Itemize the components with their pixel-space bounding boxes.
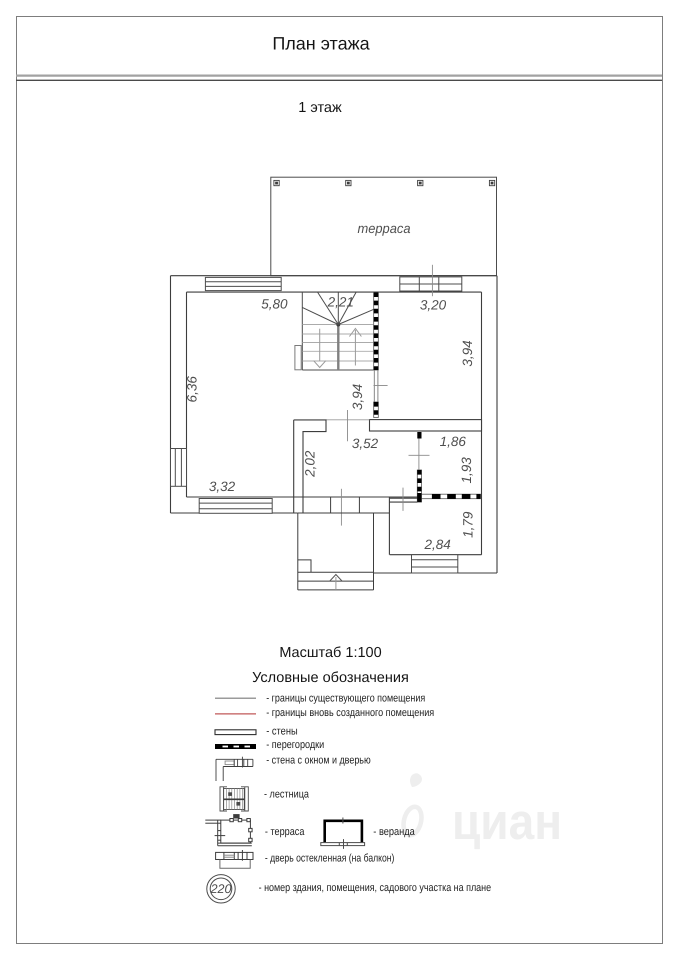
svg-text:терраса: терраса: [358, 221, 411, 236]
svg-text:3,52: 3,52: [352, 436, 379, 451]
svg-text:циан: циан: [452, 793, 562, 850]
svg-text:3,20: 3,20: [420, 298, 447, 313]
svg-text:- стены: - стены: [266, 726, 298, 738]
svg-text:- лестница: - лестница: [264, 789, 310, 801]
svg-text:1,93: 1,93: [459, 457, 474, 484]
svg-text:- границы существующего помеще: - границы существующего помещения: [266, 693, 425, 705]
svg-text:1 этаж: 1 этаж: [298, 100, 342, 116]
svg-text:- терраса: - терраса: [265, 826, 305, 838]
svg-text:5,80: 5,80: [261, 297, 288, 312]
svg-text:220: 220: [210, 882, 232, 896]
svg-text:- веранда: - веранда: [373, 826, 415, 838]
svg-text:- стена с окном и дверью: - стена с окном и дверью: [266, 755, 371, 767]
svg-text:2,84: 2,84: [423, 537, 450, 552]
svg-text:Масштаб 1:100: Масштаб 1:100: [279, 645, 381, 661]
svg-text:6,36: 6,36: [185, 376, 200, 403]
svg-text:3,94: 3,94: [350, 384, 365, 410]
svg-text:3,32: 3,32: [209, 479, 236, 494]
svg-text:1,86: 1,86: [440, 434, 467, 449]
svg-text:- номер здания, помещения, сад: - номер здания, помещения, садового учас…: [259, 882, 492, 894]
svg-text:- перегородки: - перегородки: [266, 739, 324, 751]
svg-text:2,02: 2,02: [303, 450, 318, 478]
svg-text:- дверь остекленная (на балкон: - дверь остекленная (на балкон): [265, 853, 395, 865]
svg-text:3,94: 3,94: [460, 340, 475, 366]
svg-text:2,21: 2,21: [327, 295, 354, 310]
svg-text:- границы вновь созданного пом: - границы вновь созданного помещения: [266, 707, 434, 719]
svg-text:Условные обозначения: Условные обозначения: [252, 670, 409, 686]
svg-text:1,79: 1,79: [461, 511, 476, 538]
svg-text:План этажа: План этажа: [272, 34, 370, 54]
